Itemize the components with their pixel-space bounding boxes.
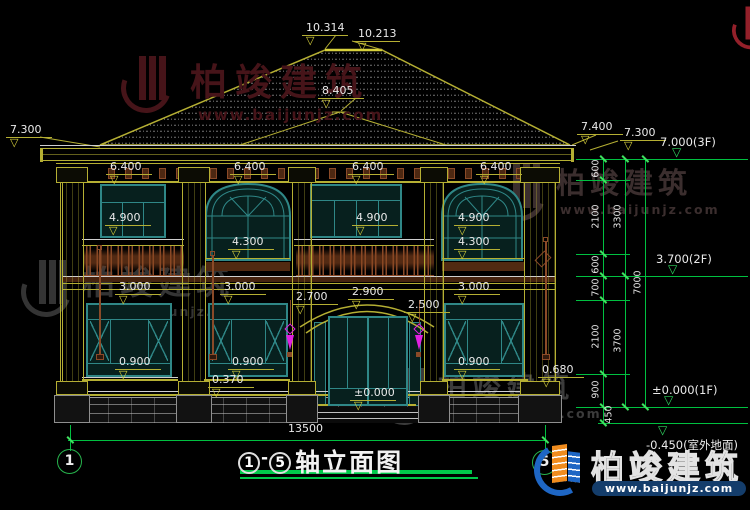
window-mullion (110, 319, 111, 363)
elevation-label: 6.400▽ (348, 161, 394, 175)
cad-line (40, 145, 576, 146)
triangle-marker-icon: ▽ (110, 174, 118, 185)
cad-line (40, 148, 574, 149)
cad-line (442, 258, 524, 259)
elevation-label: 3.000▽ (454, 281, 500, 295)
elevation-value: 3.000 (115, 281, 161, 293)
elevation-label: 8.405▽ (318, 85, 364, 99)
corbel (278, 168, 285, 179)
level-triangle-icon: ▽ (668, 263, 677, 275)
drawing-title: 1-5轴立面图 (238, 443, 403, 479)
dim-chain-label: 900 (591, 368, 602, 412)
elevation-label: 4.300▽ (228, 236, 274, 250)
elevation-value: ±0.000 (350, 387, 396, 399)
downspout-top (543, 237, 548, 242)
pilaster-shaft (424, 183, 444, 381)
elevation-value: 4.300 (454, 236, 500, 248)
elevation-label: 2.700▽ (292, 291, 338, 305)
wood-band (206, 262, 290, 271)
downspout-shoe (542, 354, 550, 360)
downspout-top (97, 245, 102, 250)
elevation-value: 0.900 (115, 356, 161, 368)
corbel (210, 168, 217, 179)
pilaster-shaft (524, 183, 556, 381)
downspout-shoe (96, 354, 104, 360)
elevation-value: 4.300 (228, 236, 274, 248)
cad-line (306, 412, 420, 413)
elevation-label: 7.300▽ (6, 124, 52, 138)
corbel (329, 168, 336, 179)
triangle-marker-icon: ▽ (296, 304, 304, 315)
dim-chain-label: 450 (604, 393, 615, 437)
downspout-top (210, 251, 215, 256)
axis-dash: - (261, 448, 268, 468)
lamp-body-icon (415, 335, 423, 350)
pilaster-shaft (292, 183, 312, 381)
triangle-marker-icon: ▽ (581, 134, 589, 145)
brand-url: www.baijunjz.com (592, 481, 746, 496)
elevation-value: 0.900 (454, 356, 500, 368)
elevation-label: ±0.000▽ (350, 387, 396, 401)
elevation-label: 0.680▽ (538, 364, 584, 378)
window-mullion (334, 200, 335, 236)
pilaster-base (56, 381, 88, 395)
elevation-label: 7.400▽ (577, 121, 623, 135)
title-text: 轴立面图 (295, 448, 403, 477)
axis-circle-1: 1 (238, 452, 260, 474)
cad-line (68, 440, 547, 441)
triangle-marker-icon: ▽ (352, 299, 360, 310)
pilaster-capital (56, 167, 88, 183)
pilaster-base (178, 381, 210, 395)
site-logo: 柏竣建筑 www.baijunjz.com (534, 436, 750, 506)
elevation-label: 6.400▽ (476, 161, 522, 175)
pilaster-capital (520, 167, 560, 183)
cad-line (571, 148, 574, 162)
triangle-marker-icon: ▽ (224, 294, 232, 305)
elevation-value: 6.400 (106, 161, 152, 173)
pilaster-pedestal (176, 395, 212, 423)
window-transom (102, 202, 164, 203)
triangle-marker-icon: ▽ (480, 174, 488, 185)
downspout (99, 250, 101, 354)
pilaster-shaft (182, 183, 206, 381)
triangle-marker-icon: ▽ (352, 174, 360, 185)
triangle-marker-icon: ▽ (306, 35, 314, 46)
downspout (212, 256, 214, 354)
downspout (545, 242, 547, 354)
corbel (448, 168, 455, 179)
dim-chain-label: 3700 (613, 319, 624, 363)
elevation-label: 3.000▽ (115, 281, 161, 295)
elevation-value: 4.900 (454, 212, 500, 224)
lamp-wire (290, 300, 291, 325)
triangle-marker-icon: ▽ (212, 387, 220, 398)
triangle-marker-icon: ▽ (356, 225, 364, 236)
cad-line (645, 159, 646, 408)
triangle-marker-icon: ▽ (322, 98, 330, 109)
elevation-label: 2.900▽ (348, 286, 394, 300)
cad-line (294, 239, 434, 240)
elevation-value: 10.213 (354, 28, 400, 40)
cad-line (40, 148, 43, 162)
elevation-label: 10.213▽ (354, 28, 400, 42)
pilaster-capital (178, 167, 210, 183)
brand-name: 柏竣建筑 (556, 160, 720, 202)
elevation-label: 4.900▽ (105, 212, 151, 226)
level-marker-label: 3.700(2F) (656, 252, 712, 266)
balustrade (296, 246, 434, 276)
elevation-value: 0.680 (538, 364, 584, 376)
pilaster-pedestal (518, 395, 562, 423)
window-transom (210, 319, 286, 320)
overall-dimension: 13500 (288, 422, 323, 435)
pilaster-shaft (60, 183, 84, 381)
elevation-label: 6.400▽ (106, 161, 152, 175)
elevation-value: 2.900 (348, 286, 394, 298)
elevation-value: 7.300 (6, 124, 52, 136)
dim-chain-label: 700 (591, 266, 602, 310)
pilaster-pedestal (418, 395, 450, 423)
elevation-value: 4.900 (352, 212, 398, 224)
level-triangle-icon: ▽ (672, 146, 681, 158)
cad-line (40, 154, 574, 155)
elevation-label: 4.900▽ (454, 212, 500, 226)
cad-line (598, 423, 748, 424)
elevation-value: 0.900 (228, 356, 274, 368)
triangle-marker-icon: ▽ (119, 369, 127, 380)
corbel (465, 168, 472, 179)
cad-line (82, 379, 178, 381)
elevation-value: 2.700 (292, 291, 338, 303)
level-marker-label: 7.000(3F) (660, 135, 716, 149)
brand-url: www.baijunjz.com (198, 106, 383, 124)
elevation-label: 0.370▽ (208, 374, 254, 388)
elevation-value: 8.405 (318, 85, 364, 97)
elevation-label: 3.000▽ (220, 281, 266, 295)
logo-building-blue-icon (568, 451, 580, 482)
elevation-value: 6.400 (348, 161, 394, 173)
triangle-marker-icon: ▽ (358, 41, 366, 52)
pilaster-capital (420, 167, 448, 183)
grid-number: 1 (65, 453, 75, 469)
cad-line (82, 239, 184, 240)
elevation-value: 7.400 (577, 121, 623, 133)
cad-line (603, 159, 604, 424)
elevation-label: 0.900▽ (454, 356, 500, 370)
level-marker-label: ±0.000(1F) (652, 383, 717, 397)
elevation-label: 0.900▽ (228, 356, 274, 370)
elevation-value: 3.000 (454, 281, 500, 293)
corbel (397, 168, 404, 179)
triangle-marker-icon: ▽ (232, 249, 240, 260)
cad-line (442, 379, 528, 381)
axis-circle-5: 5 (269, 452, 291, 474)
triangle-marker-icon: ▽ (119, 294, 127, 305)
cad-canvas: 柏竣建筑 www.baijunjz.com 柏竣建筑 www.baijunjz.… (0, 0, 750, 510)
triangle-marker-icon: ▽ (624, 140, 632, 151)
elevation-value: 10.314 (302, 22, 348, 34)
pilaster-base (520, 381, 560, 395)
door-mullion (347, 318, 348, 388)
elevation-label: 4.300▽ (454, 236, 500, 250)
elevation-label: 6.400▽ (230, 161, 276, 175)
dim-chain-label: 3300 (613, 195, 624, 239)
window-casement-x (502, 321, 520, 361)
elevation-value: 2.500 (404, 299, 450, 311)
triangle-marker-icon: ▽ (234, 174, 242, 185)
dim-chain-label: 600 (591, 147, 602, 191)
triangle-marker-icon: ▽ (408, 312, 416, 323)
pilaster-base (288, 381, 316, 395)
elevation-label: 2.500▽ (404, 299, 450, 313)
level-triangle-icon: ▽ (658, 424, 667, 436)
pilaster-pedestal (286, 395, 318, 423)
dim-chain-label: 2100 (591, 195, 602, 239)
brand-logo-icon (126, 56, 172, 108)
triangle-marker-icon: ▽ (458, 249, 466, 260)
elevation-label: 10.314▽ (302, 22, 348, 36)
lamp-base (416, 352, 421, 357)
door-mullion (388, 318, 389, 388)
level-triangle-icon: ▽ (664, 394, 673, 406)
elevation-label: 4.900▽ (352, 212, 398, 226)
dim-chain-label: 2100 (591, 315, 602, 359)
elevation-value: 6.400 (476, 161, 522, 173)
downspout-shoe (209, 354, 217, 360)
elevation-value: 0.370 (208, 374, 254, 386)
wood-band (442, 262, 524, 271)
elevation-value: 4.900 (105, 212, 151, 224)
pilaster-capital (288, 167, 316, 183)
pilaster-pedestal (54, 395, 90, 423)
lamp-base (287, 352, 292, 357)
triangle-marker-icon: ▽ (542, 377, 550, 388)
triangle-marker-icon: ▽ (458, 294, 466, 305)
window-transom (446, 319, 522, 320)
window-casement-x (149, 321, 168, 361)
triangle-marker-icon: ▽ (458, 369, 466, 380)
cad-line (302, 418, 424, 419)
dim-chain-label: 7000 (633, 261, 644, 305)
triangle-marker-icon: ▽ (10, 137, 18, 148)
pilaster-base (420, 381, 448, 395)
grid-bubble-1: 1 (57, 449, 82, 474)
elevation-value: 3.000 (220, 281, 266, 293)
cad-line (82, 377, 178, 378)
corbel (159, 168, 166, 179)
triangle-marker-icon: ▽ (109, 225, 117, 236)
triangle-marker-icon: ▽ (354, 400, 362, 411)
window-casement-x (266, 321, 284, 361)
lamp-body-icon (286, 335, 294, 350)
elevation-label: 0.900▽ (115, 356, 161, 370)
logo-building-orange-icon (552, 444, 567, 483)
cad-line (206, 258, 290, 259)
brand-url: www.baijunjz.com (560, 202, 720, 217)
elevation-value: 6.400 (230, 161, 276, 173)
corner-logo-icon (736, 7, 750, 46)
cad-line (625, 159, 626, 408)
